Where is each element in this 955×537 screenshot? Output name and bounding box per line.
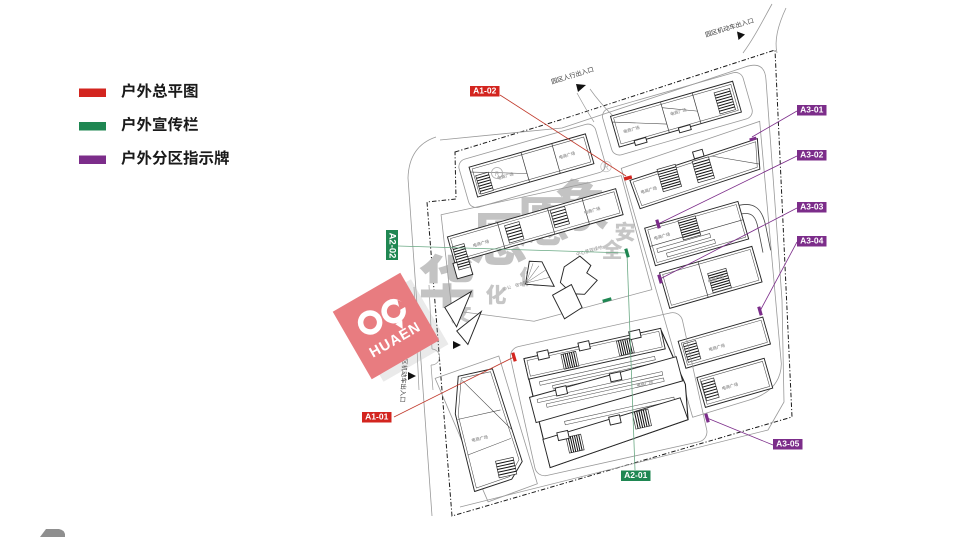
svg-text:R: R <box>495 172 500 178</box>
svg-text:A3-04: A3-04 <box>800 236 823 246</box>
svg-text:A3-05: A3-05 <box>776 439 799 449</box>
svg-text:A2-02: A2-02 <box>387 233 398 259</box>
svg-text:®: ® <box>600 159 612 176</box>
svg-text:A3-01: A3-01 <box>800 105 823 115</box>
svg-text:A1-02: A1-02 <box>473 86 496 96</box>
svg-text:A3-02: A3-02 <box>800 150 823 160</box>
svg-text:A1-01: A1-01 <box>365 412 388 422</box>
svg-text:A3-03: A3-03 <box>800 202 823 212</box>
svg-text:A2-01: A2-01 <box>624 470 647 480</box>
